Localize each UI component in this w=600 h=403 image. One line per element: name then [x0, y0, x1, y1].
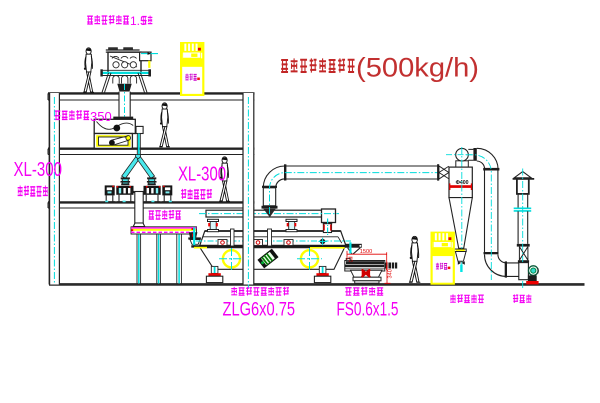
svg-text:XL-300: XL-300 — [14, 158, 63, 181]
svg-text:1500: 1500 — [360, 249, 372, 255]
svg-text:350: 350 — [90, 109, 112, 124]
svg-text:(500kg/h): (500kg/h) — [356, 53, 479, 83]
svg-text:XL-300: XL-300 — [178, 162, 226, 185]
svg-text:ZLG6x0.75: ZLG6x0.75 — [223, 298, 296, 320]
svg-text:15: 15 — [348, 258, 353, 263]
svg-text:340: 340 — [388, 269, 394, 278]
svg-text:FS0.6x1.5: FS0.6x1.5 — [337, 298, 399, 320]
